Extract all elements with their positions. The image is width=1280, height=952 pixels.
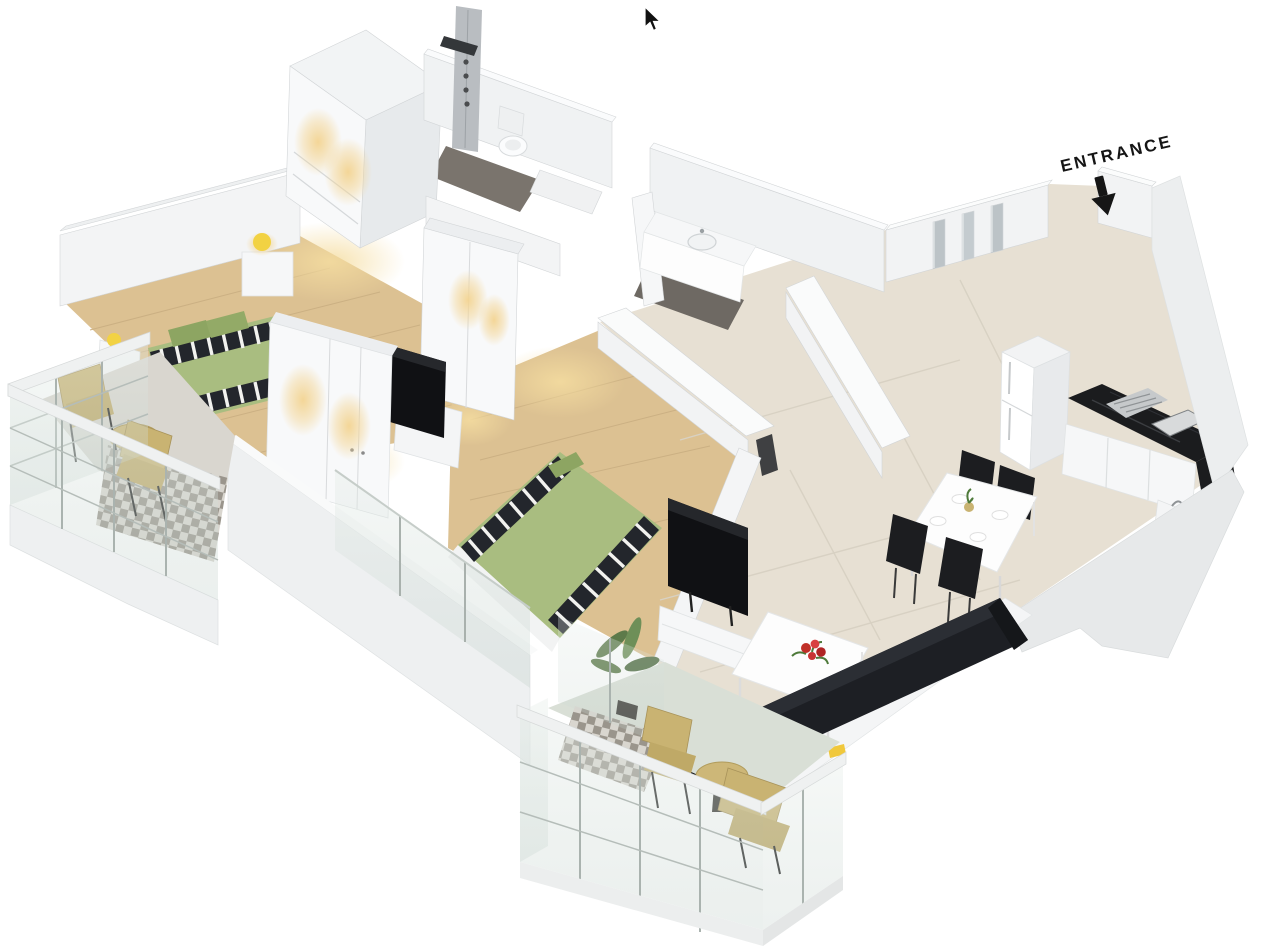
wardrobe-light-glow	[478, 294, 510, 346]
plate	[952, 495, 968, 504]
wardrobe-light-glow	[324, 138, 372, 206]
cursor-icon	[645, 7, 660, 31]
floor-plan-render: ENTRANCE	[0, 0, 1280, 952]
basin	[688, 234, 716, 250]
walkin-closet-block	[286, 30, 442, 248]
plate	[930, 517, 946, 526]
plate	[970, 533, 986, 542]
lamp-yellow	[253, 233, 271, 251]
entrance-label: ENTRANCE	[1059, 132, 1175, 176]
plate	[992, 511, 1008, 520]
wardrobe-light-glow	[327, 392, 371, 460]
fridge	[1000, 336, 1070, 470]
wardrobe-light-glow	[279, 364, 327, 436]
tap	[700, 229, 704, 233]
